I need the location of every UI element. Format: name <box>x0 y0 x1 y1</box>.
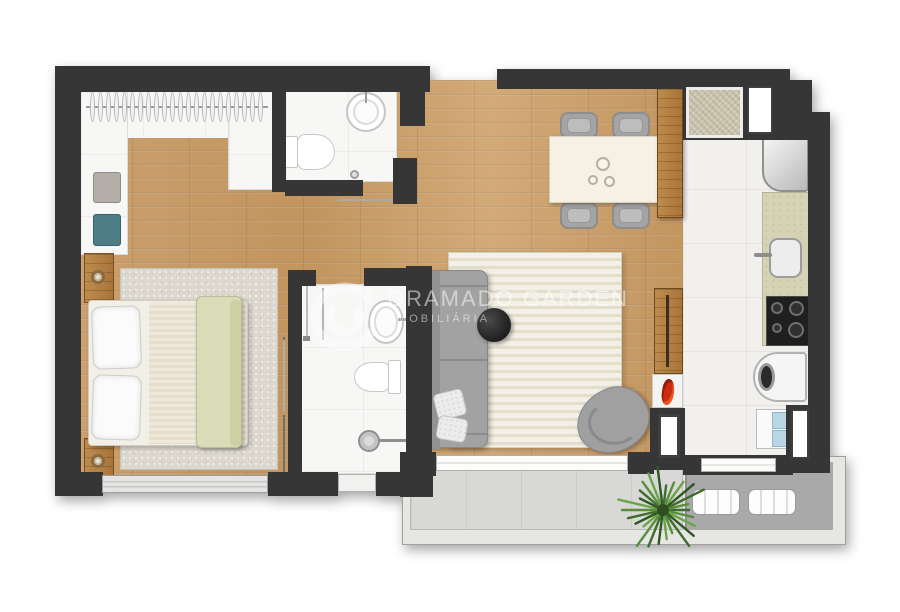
shower-glass-line <box>306 286 308 340</box>
floorplan-canvas: GRAMADO GARDEN IMOBILIÁRIA <box>0 0 900 612</box>
hanger-icon <box>242 92 247 122</box>
wall-left <box>55 66 81 496</box>
hanger-icon <box>114 92 119 122</box>
red-flowers <box>660 378 676 405</box>
dining-table <box>549 136 659 203</box>
plant <box>615 466 711 558</box>
hanger-icon <box>122 92 127 122</box>
wall-right <box>808 130 830 415</box>
bathroom2-door-line <box>322 288 324 340</box>
hanger-icon <box>178 92 183 122</box>
folded-towel-teal <box>93 214 121 246</box>
bathroom2-toilet-bowl <box>354 362 390 392</box>
sofa-pillow-2 <box>435 415 469 444</box>
stove <box>766 296 809 346</box>
window-living-kitchen-post <box>658 414 680 458</box>
balcony-glass-door-kitchen <box>701 458 776 472</box>
washing-machine <box>753 352 807 402</box>
armchair-seat-line <box>587 400 641 446</box>
bathroom1-toilet-bowl <box>297 134 335 170</box>
sideboard-groove <box>666 295 669 367</box>
sofa <box>424 270 488 448</box>
hanger-icon <box>218 92 223 122</box>
stove-burner-3 <box>772 323 782 333</box>
pillow-2 <box>91 374 142 441</box>
hanger-icon <box>170 92 175 122</box>
balcony-glass-door-living <box>436 455 628 471</box>
bathroom1-drain <box>350 170 359 179</box>
window-bedroom <box>102 475 268 493</box>
hanger-icon <box>234 92 239 122</box>
hanger-icon <box>98 92 103 122</box>
dining-chair-1 <box>560 112 598 139</box>
wall-bath1-door-stub <box>393 158 417 204</box>
bed-blanket-green <box>196 296 242 448</box>
sideboard-lower <box>654 288 683 374</box>
stove-burner-4 <box>788 322 804 338</box>
hanger-icon <box>106 92 111 122</box>
bathroom2-sink <box>368 300 404 344</box>
wall-bath1-right-stub <box>400 66 425 126</box>
hanger-icon <box>202 92 207 122</box>
pillow-1 <box>91 305 142 370</box>
shower-head <box>358 430 380 452</box>
hanger-icon <box>154 92 159 122</box>
wall-bath1-bottom <box>285 180 363 196</box>
bathroom1-toilet-tank <box>284 136 298 168</box>
stove-burner-2 <box>789 301 804 316</box>
shower-arm <box>378 439 406 442</box>
hanger-icon <box>186 92 191 122</box>
hanger-icon <box>162 92 167 122</box>
hanger-icon <box>138 92 143 122</box>
kitchen-faucet <box>754 253 772 257</box>
wall-bath2-left <box>288 270 302 474</box>
hanger-icon <box>250 92 255 122</box>
coffee-table-black <box>477 308 511 342</box>
bathroom2-toilet-tank <box>388 360 401 394</box>
dining-chair-2 <box>612 112 650 139</box>
bedroom-door-line <box>283 340 285 412</box>
wall-bath2-right <box>406 266 432 472</box>
window-right-kitchen <box>791 409 809 459</box>
nightstand-top <box>84 253 114 303</box>
folded-towel-gray <box>93 172 121 203</box>
hanger-icon <box>194 92 199 122</box>
hanger-icon <box>210 92 215 122</box>
flower-shelf <box>652 374 683 408</box>
sofa-seam-2 <box>440 359 487 361</box>
sideboard-top <box>657 88 683 218</box>
refrigerator <box>762 136 809 192</box>
dining-chair-3 <box>560 202 598 229</box>
stove-burner-1 <box>771 302 783 314</box>
wall-bath2-top-left <box>288 270 316 286</box>
kitchen-sink <box>769 238 802 278</box>
hanger-icon <box>90 92 95 122</box>
balcony-bench-2 <box>748 489 796 515</box>
dining-chair-4 <box>612 202 650 229</box>
shower-glass-handle <box>303 336 310 341</box>
laundry-cabinet <box>756 409 790 449</box>
table-plate-1 <box>596 157 610 171</box>
hanger-icon <box>258 92 263 122</box>
sofa-seam-1 <box>440 285 487 287</box>
hanger-icon <box>130 92 135 122</box>
table-plate-3 <box>604 176 615 187</box>
wall-bath1-left <box>272 88 286 192</box>
blanket-fold <box>230 300 241 446</box>
washer-door <box>758 363 775 391</box>
closet-hangers <box>90 92 276 124</box>
lamp-top <box>91 270 105 284</box>
lamp-bottom <box>91 454 105 468</box>
wall-top-left <box>55 66 430 92</box>
window-bath2 <box>338 474 376 492</box>
hanger-icon <box>146 92 151 122</box>
table-plate-2 <box>588 175 598 185</box>
pantry-nook <box>686 87 743 138</box>
window-top-kitchen <box>747 86 773 134</box>
wall-bedroom-bottom-mid <box>268 472 338 496</box>
apartment-floorplan <box>0 0 900 612</box>
hanger-icon <box>226 92 231 122</box>
wall-bedroom-bottom-left <box>55 472 103 496</box>
